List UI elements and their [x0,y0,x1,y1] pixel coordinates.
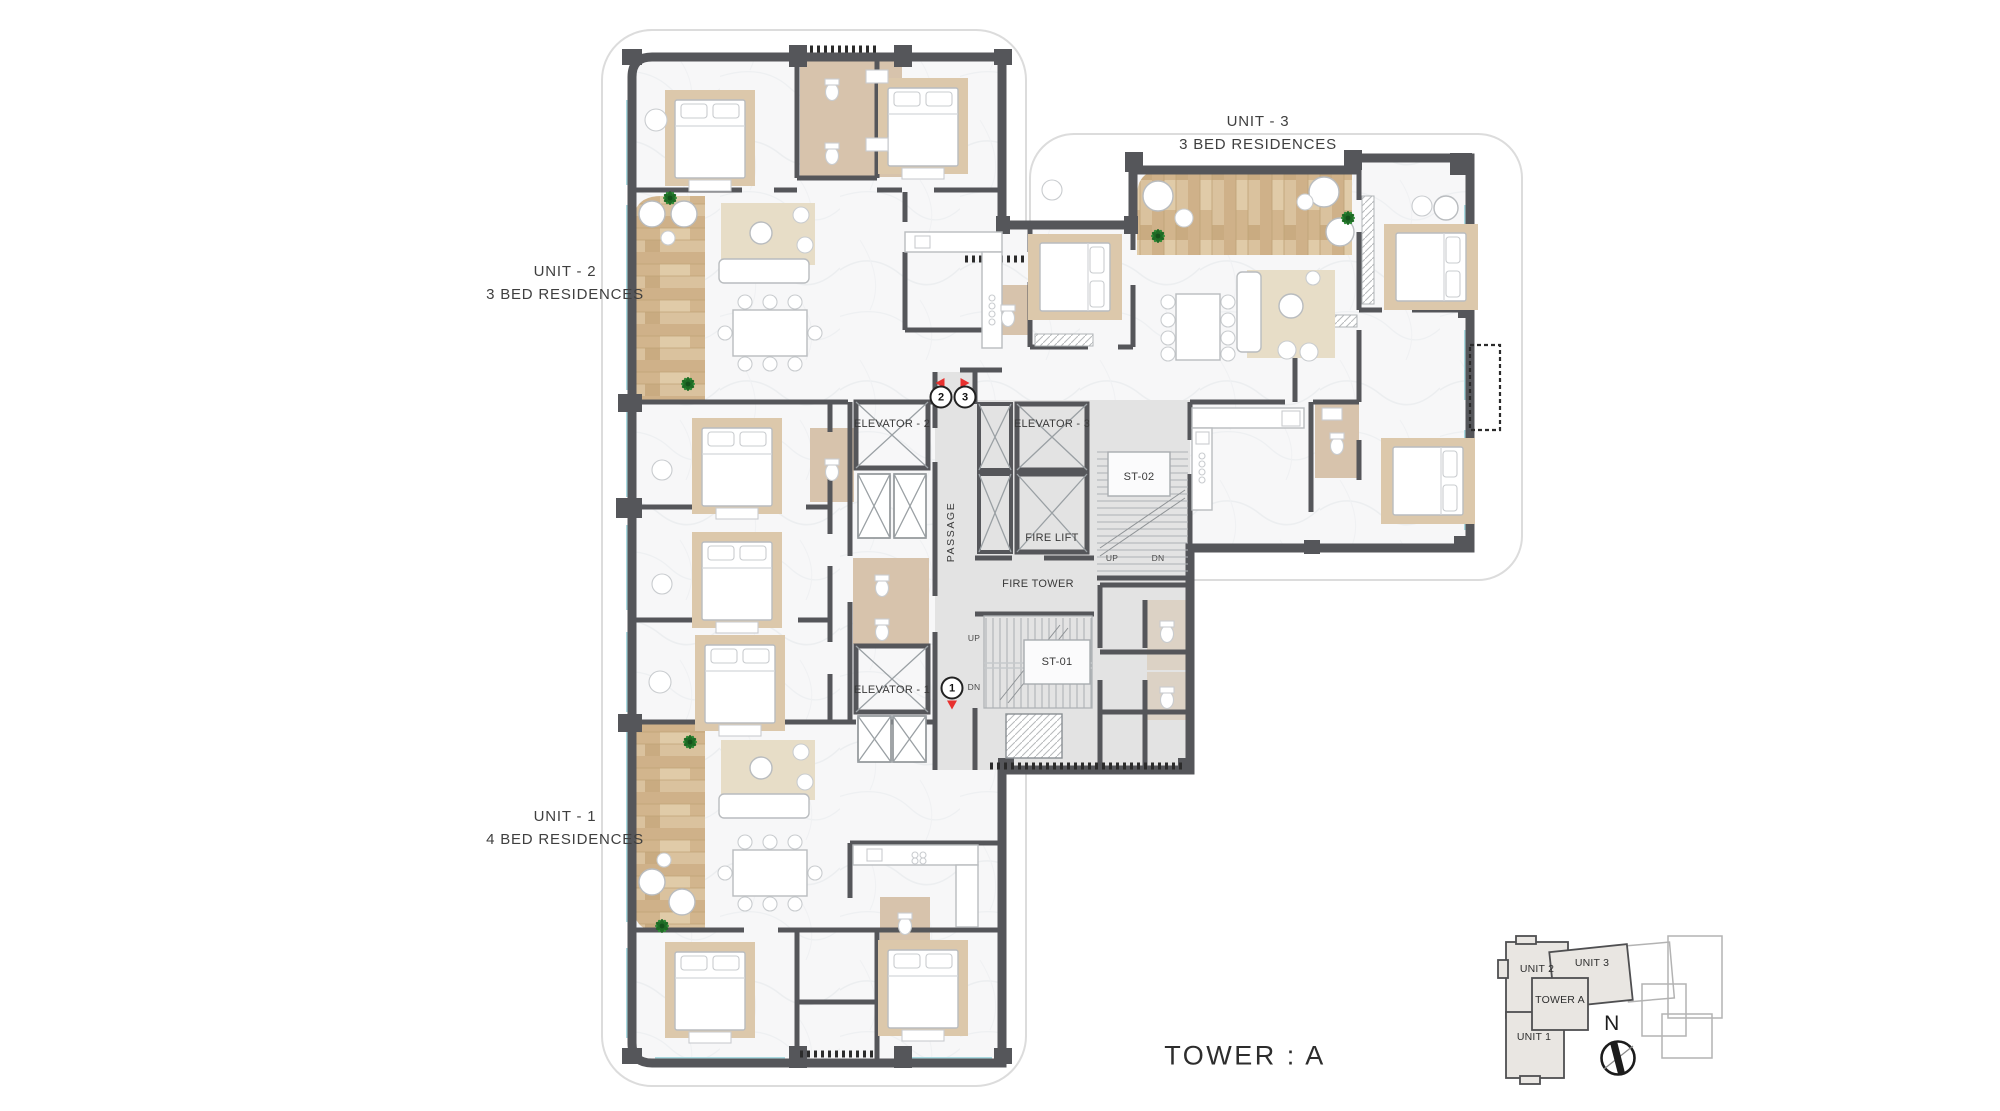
keyplan [1498,936,1722,1084]
unit1-marker: 1 [941,677,964,700]
unit2-marker: 2 [930,386,953,409]
direction-arrow-down-icon [947,701,957,710]
keyplan-ghost-tower [1624,936,1722,1058]
floor-plan-svg [0,0,2000,1111]
unit3-marker: 3 [954,386,977,409]
north-compass-icon [1602,1041,1635,1075]
floor-plan-canvas: UNIT - 2 3 BED RESIDENCES UNIT - 3 3 BED… [0,0,2000,1111]
